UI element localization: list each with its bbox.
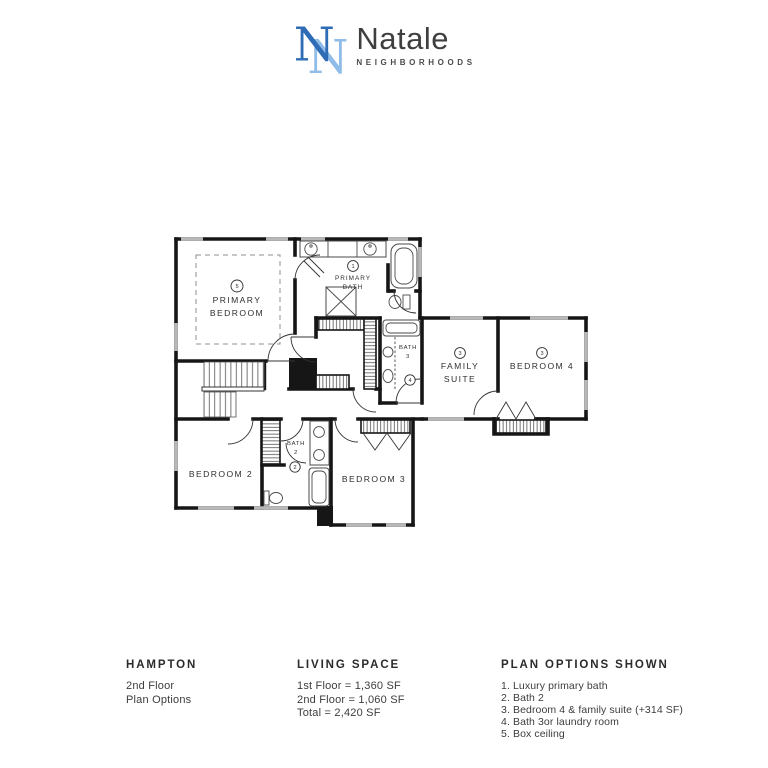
plan-option-item: 5. Box ceiling <box>501 728 683 740</box>
living-space-info: LIVING SPACE 1st Floor = 1,360 SF 2nd Fl… <box>297 659 405 721</box>
room-label-primary-bedroom: 5 PRIMARY BEDROOM <box>210 280 264 318</box>
svg-text:PRIMARY: PRIMARY <box>335 275 371 282</box>
brand-name: Natale <box>356 22 475 56</box>
svg-text:SUITE: SUITE <box>444 374 476 384</box>
room-label-primary-bath: 1 PRIMARY BATH <box>335 261 371 291</box>
svg-text:3: 3 <box>540 351 543 357</box>
svg-text:BATH: BATH <box>399 345 417 351</box>
plan-options-title: PLAN OPTIONS SHOWN <box>501 659 683 671</box>
room-label-bedroom-3: BEDROOM 3 <box>342 474 406 484</box>
svg-text:BEDROOM 2: BEDROOM 2 <box>189 469 253 479</box>
floor-plan: 5 PRIMARY BEDROOM 1 PRIMARY BATH 3 FAMIL… <box>158 225 592 535</box>
model-floor: 2nd Floor <box>126 680 197 694</box>
svg-text:3: 3 <box>458 351 461 357</box>
floor-plan-svg: 5 PRIMARY BEDROOM 1 PRIMARY BATH 3 FAMIL… <box>158 225 592 535</box>
svg-text:BATH: BATH <box>287 441 305 447</box>
svg-text:BATH: BATH <box>343 284 364 291</box>
svg-text:5: 5 <box>235 284 238 290</box>
brand-logo: N N Natale NEIGHBORHOODS <box>0 12 768 82</box>
model-title: HAMPTON <box>126 659 197 671</box>
svg-text:1: 1 <box>351 264 354 270</box>
brand-monogram-icon: N N <box>292 12 348 82</box>
svg-text:BEDROOM: BEDROOM <box>210 308 264 318</box>
svg-text:FAMILY: FAMILY <box>441 361 479 371</box>
svg-text:4: 4 <box>408 378 411 384</box>
room-label-bedroom-4: 3 BEDROOM 4 <box>510 348 574 371</box>
svg-text:BEDROOM 4: BEDROOM 4 <box>510 361 574 371</box>
svg-text:3: 3 <box>406 354 410 360</box>
brand-tagline: NEIGHBORHOODS <box>356 58 475 67</box>
staircase <box>202 362 264 417</box>
room-label-bedroom-2: BEDROOM 2 <box>189 469 253 479</box>
monogram-n-dark: N <box>294 18 335 73</box>
plan-options-info: PLAN OPTIONS SHOWN 1. Luxury primary bat… <box>501 659 683 740</box>
living-space-second-floor: 2nd Floor = 1,060 SF <box>297 694 405 708</box>
plan-option-item: 3. Bedroom 4 & family suite (+314 SF) <box>501 704 683 716</box>
model-plan-options: Plan Options <box>126 694 197 708</box>
room-label-bath-3: BATH 3 4 <box>399 345 417 385</box>
living-space-first-floor: 1st Floor = 1,360 SF <box>297 680 405 694</box>
svg-text:2: 2 <box>293 465 296 471</box>
svg-text:BEDROOM 3: BEDROOM 3 <box>342 474 406 484</box>
svg-text:2: 2 <box>294 450 298 456</box>
room-label-bath-2: BATH 2 2 <box>287 441 305 472</box>
living-space-title: LIVING SPACE <box>297 659 405 671</box>
model-info: HAMPTON 2nd Floor Plan Options <box>126 659 197 707</box>
plan-option-item: 1. Luxury primary bath <box>501 680 683 692</box>
plan-option-item: 2. Bath 2 <box>501 692 683 704</box>
brand-text: Natale NEIGHBORHOODS <box>356 22 475 67</box>
plan-option-item: 4. Bath 3or laundry room <box>501 716 683 728</box>
room-label-family-suite: 3 FAMILY SUITE <box>441 348 479 384</box>
svg-text:PRIMARY: PRIMARY <box>213 295 262 305</box>
living-space-total: Total = 2,420 SF <box>297 707 405 721</box>
plan-sheet: N N Natale NEIGHBORHOODS <box>0 0 768 768</box>
